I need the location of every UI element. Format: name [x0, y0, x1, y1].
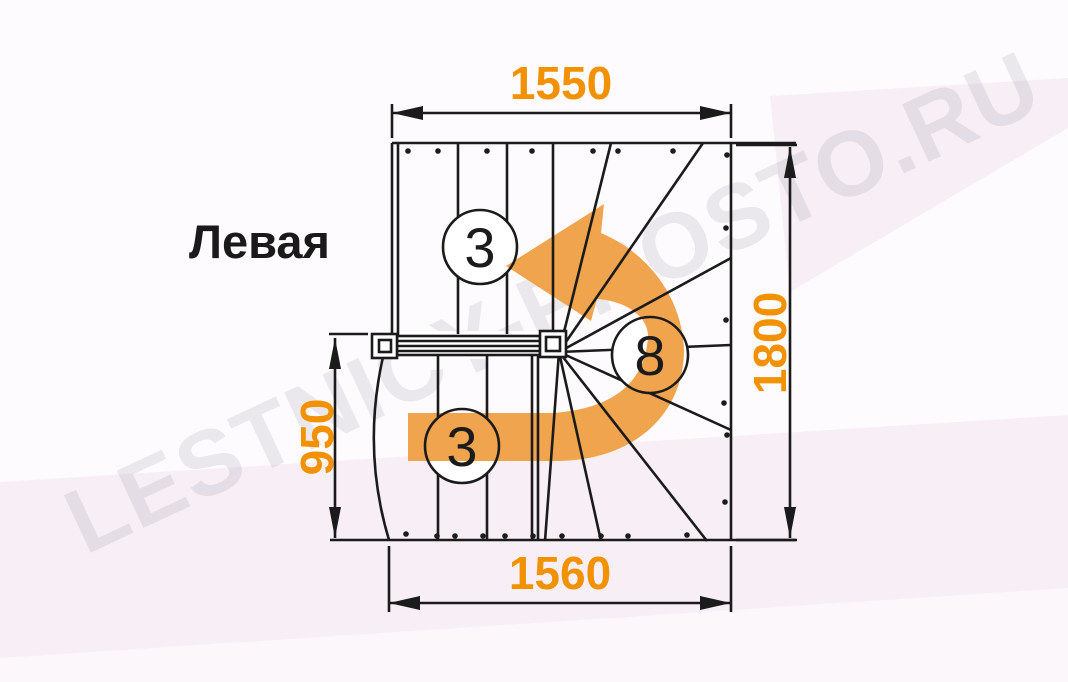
dimension-top-label: 1550	[510, 57, 612, 109]
dimension-right-label: 1800	[744, 292, 796, 394]
lower-flight-count: 3	[446, 415, 477, 478]
handrail	[372, 331, 566, 358]
stair-plan-canvas: LESTNICY-PROSTO.RU	[0, 0, 1068, 682]
dimension-left-label: 950	[291, 399, 343, 476]
dimension-bottom-label: 1560	[509, 547, 611, 599]
plan-title: Левая	[189, 215, 330, 268]
stair-plan-drawing: Левая 1550 1800 950 1560 3 8 3	[0, 0, 1068, 682]
winder-count: 8	[634, 324, 665, 387]
upper-flight-count: 3	[464, 216, 495, 279]
